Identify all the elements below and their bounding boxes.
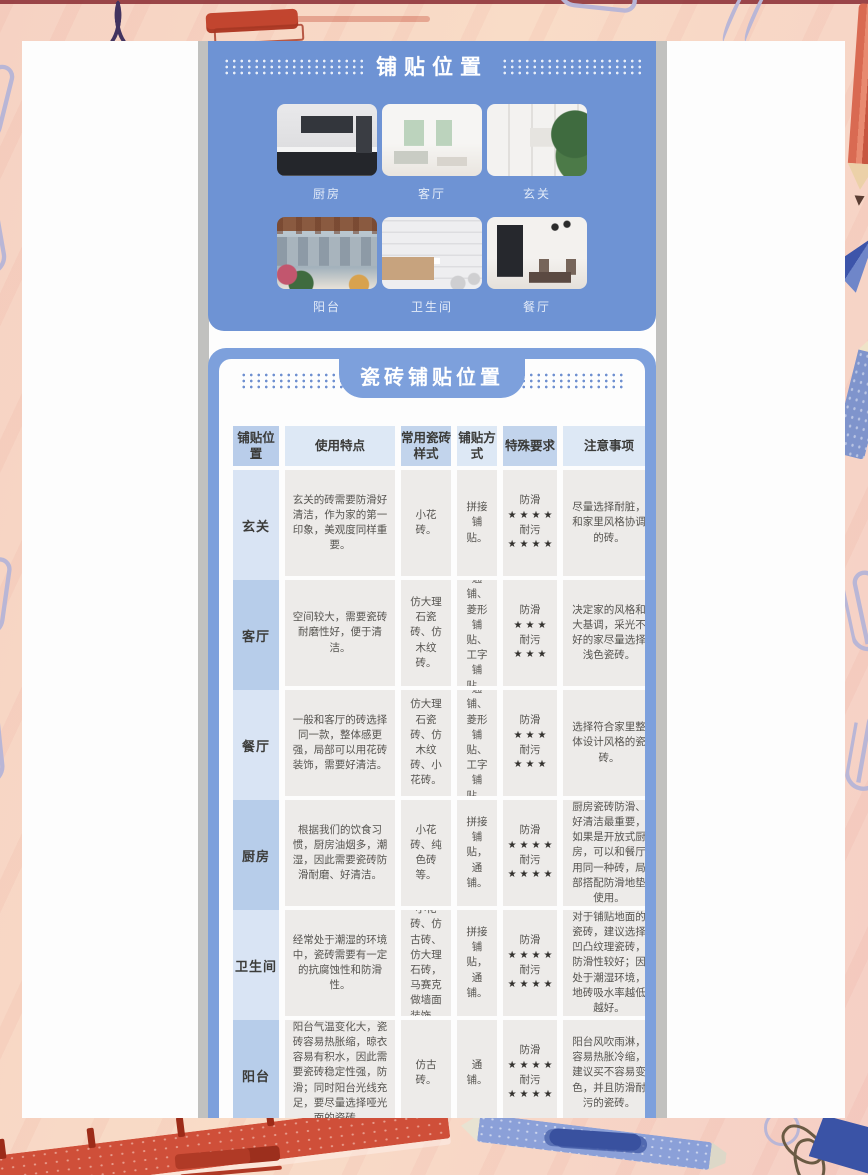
- cell-notes: 对于铺贴地面的瓷砖，建议选择凹凸纹理瓷砖，防滑性较好；因处于潮湿环境，地砖吸水率…: [563, 910, 645, 1016]
- table-body-grid: 使用特点 常用瓷砖样式 铺贴方式 特殊要求 注意事项 玄关的砖需要防滑好清洁，作…: [285, 426, 645, 1118]
- slip-label: 防滑: [520, 823, 541, 838]
- column-header-notes: 注意事项: [563, 426, 645, 466]
- bathroom-photo: [382, 217, 482, 289]
- table-section-title: 瓷砖铺贴位置: [339, 352, 525, 398]
- cell-styles: 小花砖。: [401, 470, 451, 576]
- stain-star-rating: ★★★★: [508, 868, 556, 883]
- cell-method: 通铺、菱形铺贴、工字铺贴。: [457, 580, 497, 686]
- red-pencil-doodle: [845, 3, 868, 204]
- slip-label: 防滑: [520, 933, 541, 948]
- row-location: 厨房: [233, 800, 279, 910]
- photo-label: 卫生间: [382, 298, 482, 315]
- kitchen-photo: [277, 104, 377, 176]
- column-header-styles: 常用瓷砖样式: [401, 426, 451, 466]
- paper-clip-icon: [842, 697, 868, 804]
- photo-kitchen: 厨房: [277, 104, 377, 217]
- stain-label: 耐污: [520, 743, 541, 758]
- cell-requirements: 防滑 ★★★★ 耐污 ★★★★: [503, 470, 557, 576]
- cell-features: 经常处于潮湿的环境中，瓷砖需要有一定的抗腐蚀性和防滑性。: [285, 910, 395, 1016]
- cell-features: 阳台气温变化大，瓷砖容易热胀缩，晾衣容易有积水，因此需要瓷砖稳定性强，防滑；同时…: [285, 1020, 395, 1118]
- cell-notes: 选择符合家里整体设计风格的瓷砖。: [563, 690, 645, 796]
- cell-method: 通铺、菱形铺贴、工字铺贴。: [457, 690, 497, 796]
- cell-features: 空间较大，需要瓷砖耐磨性好，便于清洁。: [285, 580, 395, 686]
- photo-section-header: 铺贴位置: [208, 41, 656, 81]
- table-section-body: 铺贴位置 玄关 客厅 餐厅 厨房 卫生间 阳台 使用特点 常用瓷砖样式 铺贴方式…: [219, 359, 645, 1118]
- column-header-requirements: 特殊要求: [503, 426, 557, 466]
- column-header-features: 使用特点: [285, 426, 395, 466]
- photo-label: 客厅: [382, 185, 482, 202]
- dots-pattern-left: [240, 372, 344, 390]
- stain-star-rating: ★★★★: [508, 978, 556, 993]
- cell-styles: 小花砖、纯色砖等。: [401, 800, 451, 906]
- row-location: 阳台: [233, 1020, 279, 1118]
- table-section-card: 铺贴位置 玄关 客厅 餐厅 厨房 卫生间 阳台 使用特点 常用瓷砖样式 铺贴方式…: [208, 348, 656, 1118]
- row-location: 玄关: [233, 470, 279, 580]
- cell-notes: 决定家的风格和大基调，采光不好的家尽量选择浅色瓷砖。: [563, 580, 645, 686]
- photo-label: 厨房: [277, 185, 377, 202]
- cell-notes: 阳台风吹雨淋，容易热胀冷缩，建议买不容易变色，并且防滑耐污的瓷砖。: [563, 1020, 645, 1118]
- cell-method: 拼接铺贴。: [457, 470, 497, 576]
- dots-pattern-right: [501, 58, 641, 75]
- entryway-photo: [487, 104, 587, 176]
- photo-label: 阳台: [277, 298, 377, 315]
- photo-label: 餐厅: [487, 298, 587, 315]
- stain-label: 耐污: [520, 853, 541, 868]
- column-header-location: 铺贴位置: [233, 426, 279, 466]
- slip-label: 防滑: [520, 713, 541, 728]
- photo-entryway: 玄关: [487, 104, 587, 217]
- cell-requirements: 防滑 ★★★ 耐污 ★★★: [503, 580, 557, 686]
- living-room-photo: [382, 104, 482, 176]
- cell-notes: 尽量选择耐脏，和家里风格协调的砖。: [563, 470, 645, 576]
- cell-requirements: 防滑 ★★★ 耐污 ★★★: [503, 690, 557, 796]
- photo-section-card: 铺贴位置 厨房 客厅 玄关 阳台 卫生间: [208, 41, 656, 331]
- cell-features: 玄关的砖需要防滑好清洁，作为家的第一印象，美观度同样重要。: [285, 470, 395, 576]
- cell-requirements: 防滑 ★★★★ 耐污 ★★★★: [503, 910, 557, 1016]
- binder-clip-icon: [808, 1114, 868, 1174]
- stain-label: 耐污: [520, 633, 541, 648]
- dots-pattern-left: [223, 58, 363, 75]
- dining-room-photo: [487, 217, 587, 289]
- cell-features: 一般和客厅的砖选择同一款，整体感更强，局部可以用花砖装饰，需要好清洁。: [285, 690, 395, 796]
- cell-method: 通铺。: [457, 1020, 497, 1118]
- room-photo-grid: 厨房 客厅 玄关 阳台 卫生间 餐厅: [277, 104, 587, 330]
- photo-section-title: 铺贴位置: [376, 51, 488, 81]
- slip-label: 防滑: [520, 1043, 541, 1058]
- slip-label: 防滑: [520, 493, 541, 508]
- stain-star-rating: ★★★★: [508, 1088, 556, 1103]
- dots-pattern-right: [520, 372, 624, 390]
- paper-clip-icon: [0, 690, 19, 794]
- slip-star-rating: ★★★★: [508, 839, 556, 854]
- balcony-photo: [277, 217, 377, 289]
- infographic-frame: 铺贴位置 厨房 客厅 玄关 阳台 卫生间: [0, 0, 868, 1175]
- row-location: 卫生间: [233, 910, 279, 1020]
- photo-dining-room: 餐厅: [487, 217, 587, 330]
- row-location: 餐厅: [233, 690, 279, 800]
- row-location: 客厅: [233, 580, 279, 690]
- column-header-method: 铺贴方式: [457, 426, 497, 466]
- column-shadow-right: [656, 41, 667, 1118]
- stain-label: 耐污: [520, 963, 541, 978]
- stain-label: 耐污: [520, 523, 541, 538]
- stain-label: 耐污: [520, 1073, 541, 1088]
- photo-living-room: 客厅: [382, 104, 482, 217]
- cell-styles: 仿大理石瓷砖、仿木纹砖。: [401, 580, 451, 686]
- paper-clip-icon: [547, 0, 651, 27]
- cell-requirements: 防滑 ★★★★ 耐污 ★★★★: [503, 1020, 557, 1118]
- slip-star-rating: ★★★: [514, 619, 550, 634]
- slip-star-rating: ★★★★: [508, 949, 556, 964]
- cell-requirements: 防滑 ★★★★ 耐污 ★★★★: [503, 800, 557, 906]
- location-column: 铺贴位置 玄关 客厅 餐厅 厨房 卫生间 阳台: [233, 426, 279, 1118]
- red-crayon-streak: [280, 16, 430, 22]
- cell-styles: 小花砖、仿古砖、仿大理石砖，马赛克做墙面装饰。: [401, 910, 451, 1016]
- cell-method: 拼接铺贴，通铺。: [457, 910, 497, 1016]
- photo-label: 玄关: [487, 185, 587, 202]
- paper-clip-icon: [0, 179, 22, 286]
- blue-crayon-doodle: [476, 1114, 713, 1170]
- slip-star-rating: ★★★: [514, 729, 550, 744]
- cell-method: 拼接铺贴，通铺。: [457, 800, 497, 906]
- cell-notes: 厨房瓷砖防滑、好清洁最重要，如果是开放式厨房，可以和餐厅用同一种砖，局部搭配防滑…: [563, 800, 645, 906]
- cell-features: 根据我们的饮食习惯，厨房油烟多，潮湿，因此需要瓷砖防滑耐磨、好清洁。: [285, 800, 395, 906]
- slip-star-rating: ★★★★: [508, 1059, 556, 1074]
- slip-label: 防滑: [520, 603, 541, 618]
- cell-styles: 仿古砖。: [401, 1020, 451, 1118]
- stain-star-rating: ★★★★: [508, 538, 556, 553]
- stain-star-rating: ★★★: [514, 648, 550, 663]
- photo-balcony: 阳台: [277, 217, 377, 330]
- stain-star-rating: ★★★: [514, 758, 550, 773]
- slip-star-rating: ★★★★: [508, 509, 556, 524]
- tile-position-table: 铺贴位置 玄关 客厅 餐厅 厨房 卫生间 阳台 使用特点 常用瓷砖样式 铺贴方式…: [233, 426, 645, 1118]
- cell-styles: 仿大理石瓷砖、仿木纹砖、小花砖。: [401, 690, 451, 796]
- photo-bathroom: 卫生间: [382, 217, 482, 330]
